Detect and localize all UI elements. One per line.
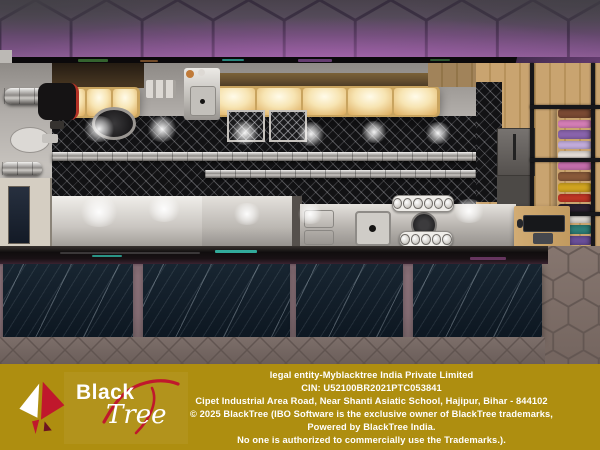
chair-top-view	[38, 83, 79, 120]
footer-legal-text: legal entity-Myblacktree India Private L…	[185, 369, 558, 447]
wood-hood-center	[205, 73, 435, 86]
footer-line-legal-entity: legal entity-Myblacktree India Private L…	[185, 369, 558, 382]
light-spot	[424, 122, 452, 144]
pass-shelf-rail	[52, 152, 480, 161]
light-spot	[146, 116, 178, 142]
footer-line-copyright: © 2025 BlackTree (IBO Software is the ex…	[185, 408, 558, 421]
band-glint	[298, 59, 332, 62]
knob-strip-top	[392, 195, 454, 212]
footer-line-powered-by: Powered by BlackTree India.	[185, 421, 558, 434]
control-knob	[400, 234, 410, 245]
footer-line-trademark-notice: No one is authorized to commercially use…	[185, 434, 558, 447]
footer-line-cin: CIN: U52100BR2021PTC053841	[185, 382, 558, 395]
light-spot	[452, 199, 486, 223]
partition-frame-horizontal	[530, 105, 600, 109]
control-knob	[442, 234, 452, 245]
control-knob	[411, 234, 421, 245]
tall-cabinet	[0, 178, 52, 248]
purple-hex-wall	[0, 0, 600, 57]
cabinet-glass-panel	[8, 186, 30, 244]
light-spot	[82, 116, 116, 142]
light-spot	[360, 121, 388, 143]
light-spot	[296, 122, 326, 146]
sink-item	[198, 69, 205, 76]
control-knob	[434, 198, 443, 209]
floor-lattice	[0, 337, 545, 364]
kitchen-render: Black Tree legal entity-Myblacktree Indi…	[0, 0, 600, 450]
chair-leg	[50, 121, 64, 129]
band-glint	[430, 59, 450, 61]
marble-front-panel	[413, 263, 542, 338]
brand-word-tree: Tree	[106, 400, 167, 430]
band-glint	[222, 59, 244, 61]
mouse	[517, 219, 523, 228]
blacktree-logo-icon	[14, 376, 68, 438]
marble-front-panel	[296, 263, 403, 338]
wall-sink	[184, 68, 220, 120]
control-knob	[393, 198, 402, 209]
edge-glint	[470, 257, 506, 260]
towel-bar	[2, 162, 42, 175]
edge-glint	[215, 250, 257, 253]
drain-hole	[369, 225, 376, 232]
partition-frame-horizontal	[530, 158, 600, 162]
light-spot	[146, 196, 182, 222]
control-knob	[424, 198, 433, 209]
light-spot	[78, 197, 120, 227]
pos-screen	[523, 215, 565, 232]
edge-glint	[92, 255, 122, 257]
wall-table-arm	[42, 134, 58, 143]
control-knob	[432, 234, 442, 245]
marble-front-panel	[143, 263, 290, 338]
marble-front-panel	[3, 263, 133, 338]
switch-panel	[146, 80, 176, 98]
storage-cabinet-lower	[497, 176, 533, 206]
light-spot	[296, 204, 324, 224]
light-spot	[230, 121, 260, 145]
service-counter-edge	[0, 246, 548, 264]
range-drawer	[304, 230, 334, 245]
band-glint	[140, 60, 158, 62]
control-knob	[413, 198, 422, 209]
drop-in-sink	[355, 211, 391, 246]
sink-bowl	[190, 86, 216, 116]
brand-wordmark: Black Tree	[72, 374, 196, 444]
wall-lighting	[0, 0, 600, 57]
sink-drain	[200, 99, 205, 104]
control-knob	[403, 198, 412, 209]
footer-line-address: Cipet Industrial Area Road, Near Shanti …	[185, 395, 558, 408]
brand-footer: Black Tree legal entity-Myblacktree Indi…	[0, 364, 600, 450]
sink-item	[186, 70, 194, 78]
edge-glint	[60, 252, 200, 254]
cabinet-handle	[513, 134, 516, 160]
pos-stand	[533, 233, 553, 244]
kitchen-interior	[0, 63, 600, 248]
control-knob	[421, 234, 431, 245]
service-front	[0, 258, 600, 364]
light-spot	[232, 203, 262, 225]
band-glint	[78, 59, 108, 62]
knob-strip-bottom	[399, 231, 453, 247]
pass-shelf-rail-lower	[205, 170, 480, 178]
